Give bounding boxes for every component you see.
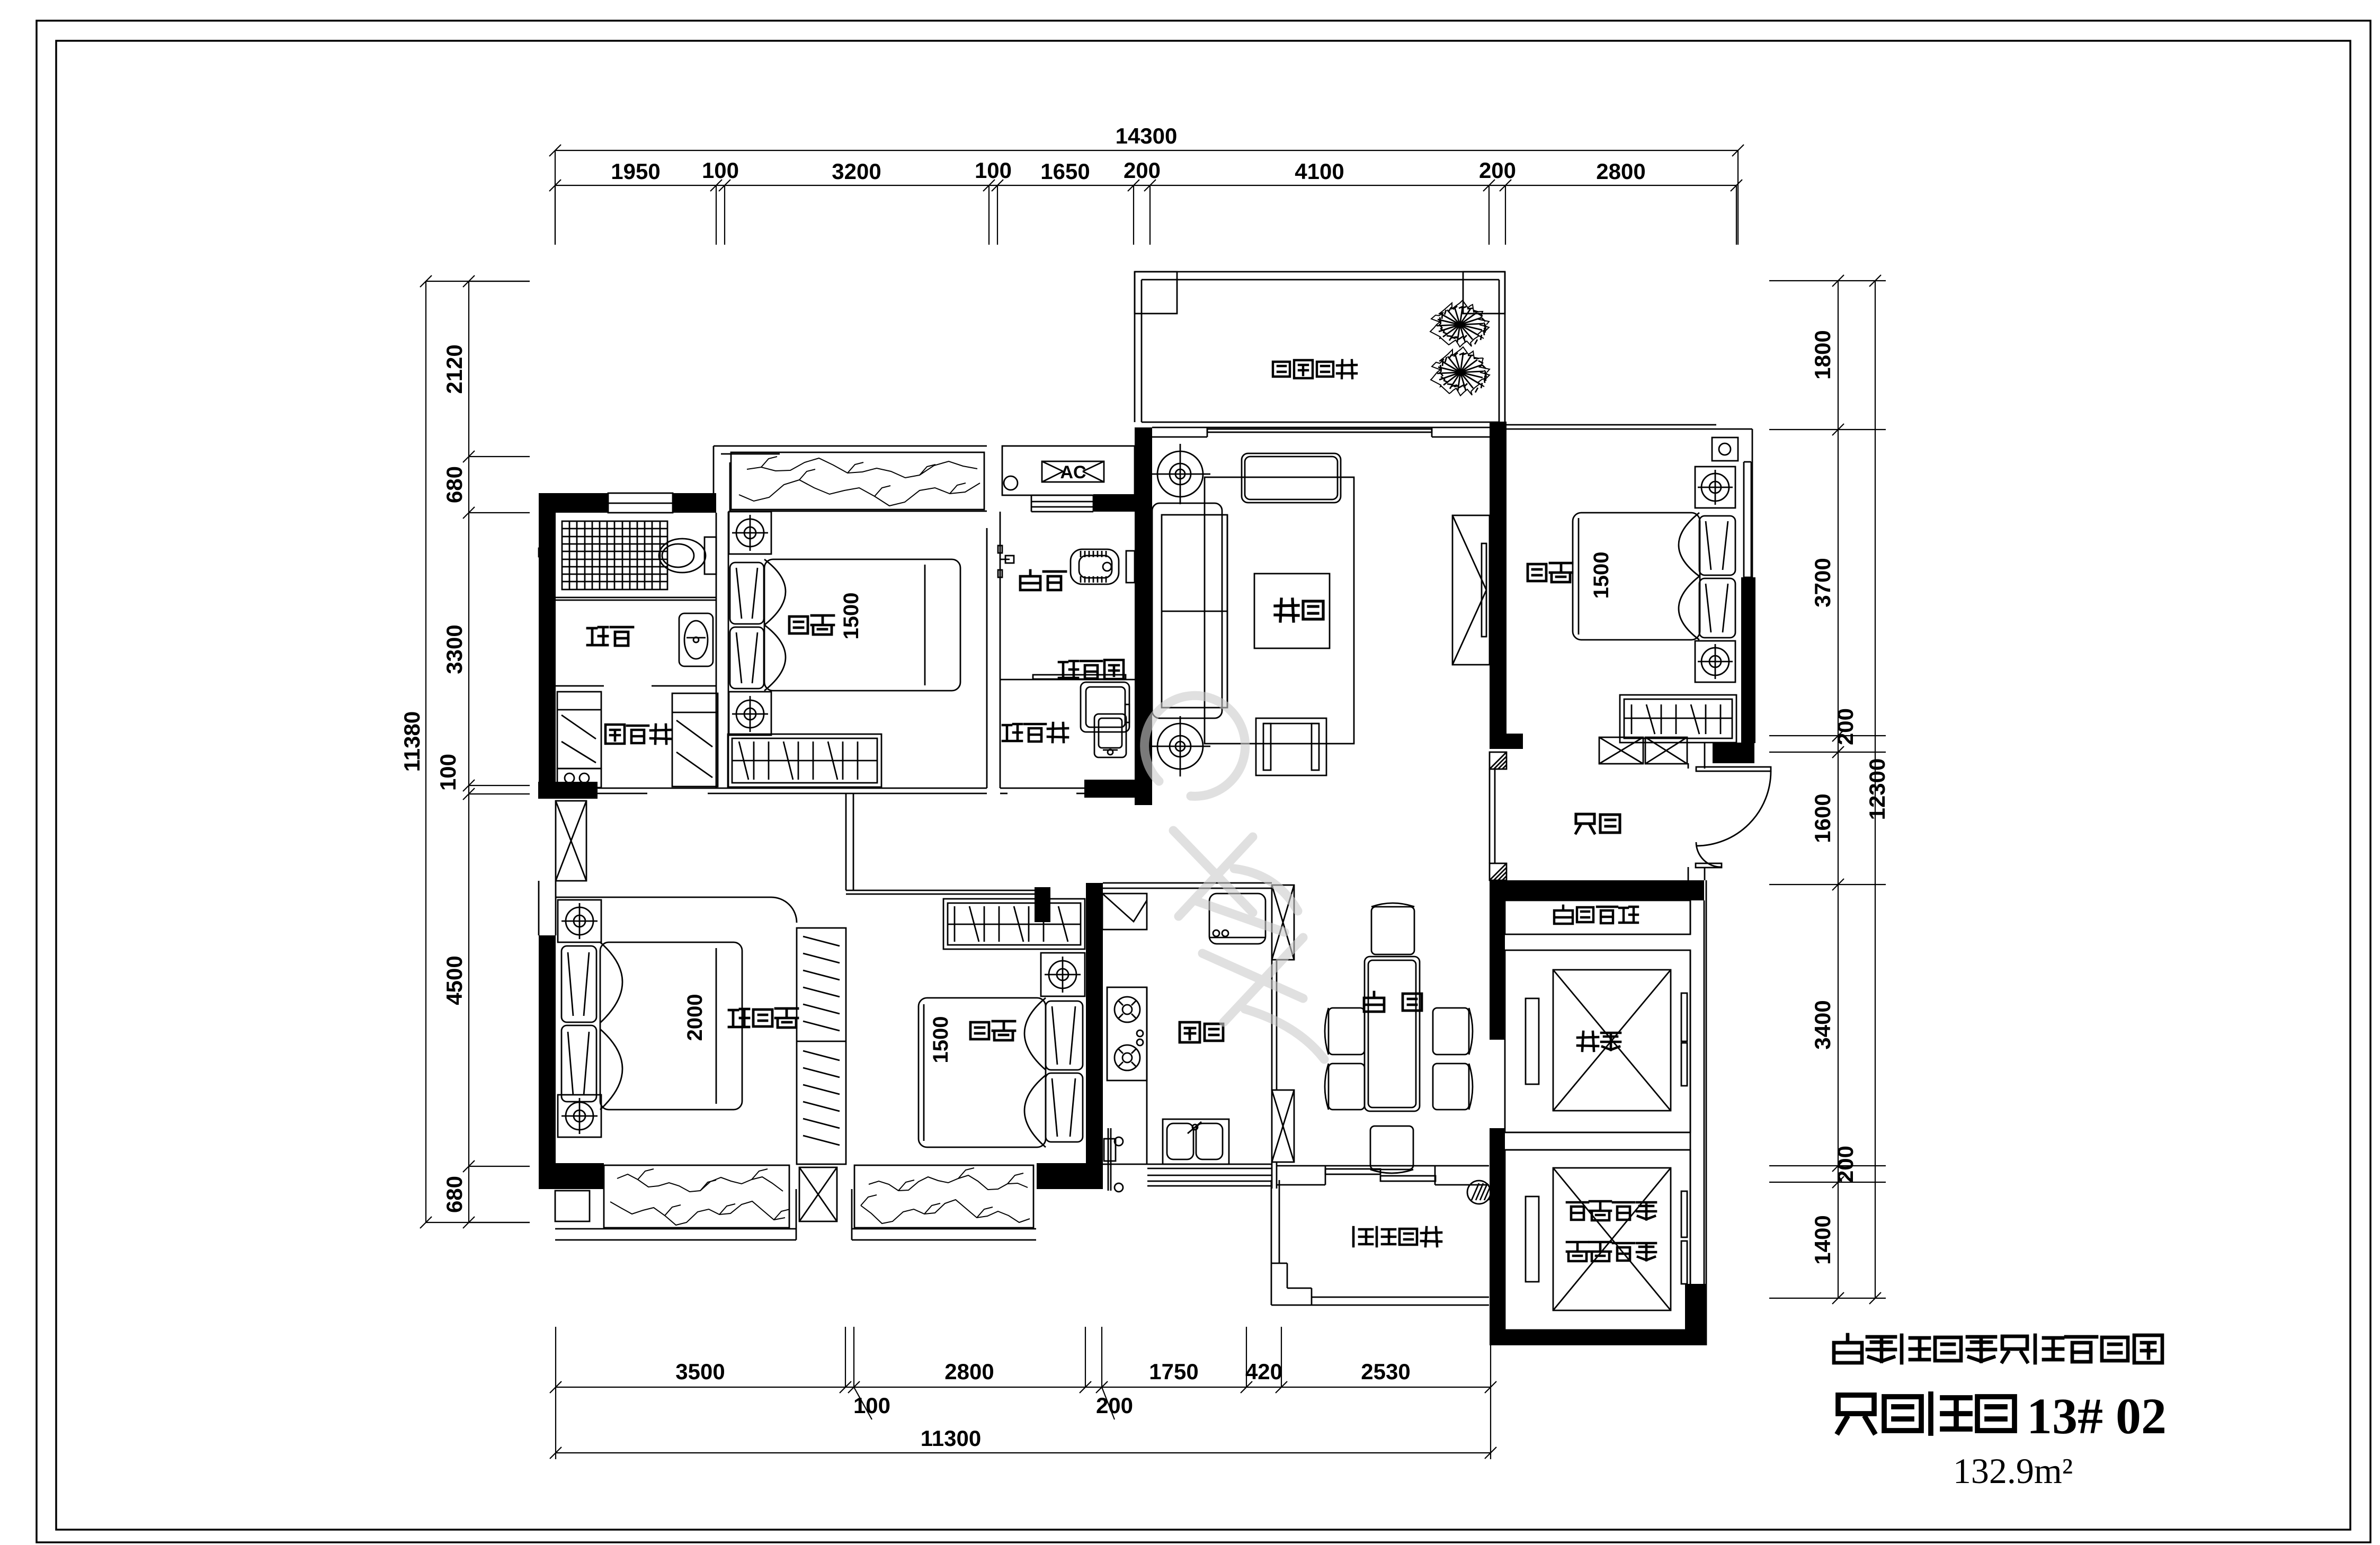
svg-text:680: 680 <box>442 1176 467 1213</box>
svg-text:1650: 1650 <box>1040 159 1090 184</box>
svg-text:1400: 1400 <box>1810 1215 1835 1264</box>
svg-text:1800: 1800 <box>1810 330 1835 379</box>
svg-text:4500: 4500 <box>442 955 467 1005</box>
svg-text:1600: 1600 <box>1810 793 1835 843</box>
svg-text:200: 200 <box>1833 708 1858 745</box>
svg-text:132.9m²: 132.9m² <box>1953 1451 2073 1491</box>
svg-text:100: 100 <box>975 158 1012 183</box>
svg-text:100: 100 <box>702 158 739 183</box>
svg-text:12300: 12300 <box>1865 758 1889 820</box>
svg-text:4100: 4100 <box>1295 159 1344 184</box>
svg-text:200: 200 <box>1124 158 1161 183</box>
svg-text:100: 100 <box>435 754 460 791</box>
svg-text:1500: 1500 <box>929 1016 952 1064</box>
svg-text:2800: 2800 <box>944 1359 994 1384</box>
svg-text:2120: 2120 <box>442 344 467 394</box>
svg-text:200: 200 <box>1479 158 1516 183</box>
svg-text:11300: 11300 <box>921 1426 981 1451</box>
svg-text:2530: 2530 <box>1361 1359 1410 1384</box>
svg-text:3300: 3300 <box>442 624 467 674</box>
svg-text:14300: 14300 <box>1116 123 1178 148</box>
svg-text:1500: 1500 <box>1590 552 1613 599</box>
svg-text:2000: 2000 <box>683 994 707 1041</box>
svg-text:200: 200 <box>1833 1146 1858 1183</box>
svg-text:11380: 11380 <box>399 711 424 772</box>
svg-text:1950: 1950 <box>611 159 660 184</box>
svg-text:2800: 2800 <box>1596 159 1645 184</box>
svg-text:200: 200 <box>1096 1393 1133 1418</box>
svg-text:3400: 3400 <box>1810 1000 1835 1049</box>
svg-text:3700: 3700 <box>1810 558 1835 607</box>
svg-text:3200: 3200 <box>832 159 881 184</box>
svg-text:AC: AC <box>1060 462 1086 483</box>
svg-text:680: 680 <box>442 466 467 503</box>
svg-text:420: 420 <box>1245 1359 1282 1384</box>
svg-text:3500: 3500 <box>675 1359 725 1384</box>
svg-text:13# 02: 13# 02 <box>2027 1388 2167 1444</box>
svg-text:1750: 1750 <box>1149 1359 1198 1384</box>
svg-text:1500: 1500 <box>840 593 863 640</box>
